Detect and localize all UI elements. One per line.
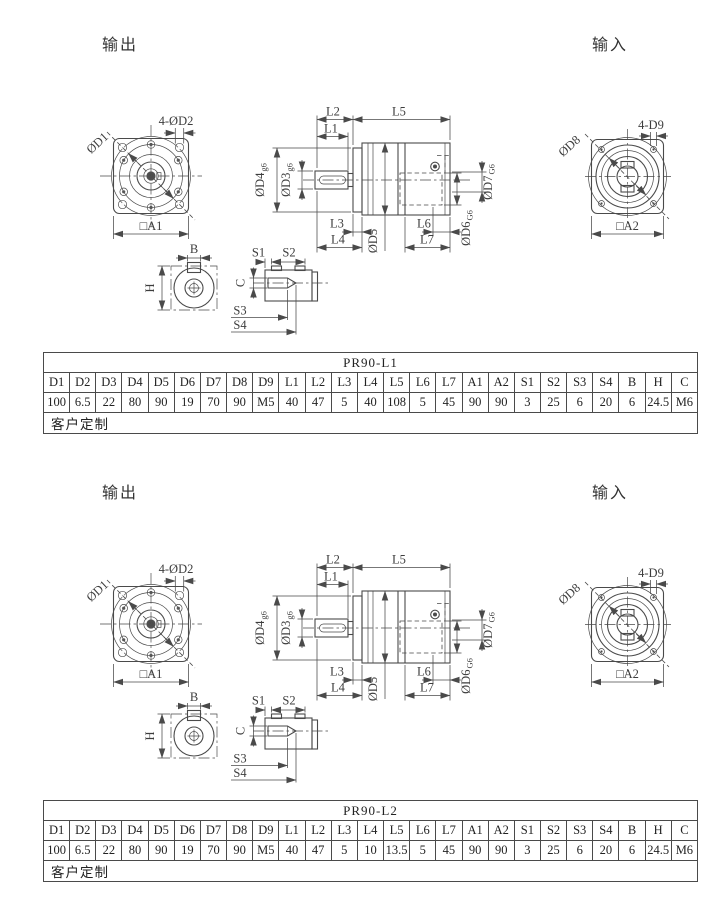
- table-cell: 19: [174, 393, 200, 413]
- table-cell: L4: [357, 373, 383, 393]
- table-cell: D1: [44, 373, 70, 393]
- table-cell: 6: [567, 841, 593, 861]
- dim-label-a1: □A1: [140, 667, 163, 681]
- table-cell: L2: [305, 821, 331, 841]
- dim-label-d8: ØD8: [556, 133, 583, 160]
- table-footer: 客户定制: [44, 413, 698, 434]
- table-cell: A2: [488, 821, 514, 841]
- table-cell: M5: [253, 393, 279, 413]
- dim-label-d4: ØD4g6: [253, 163, 269, 197]
- table-cell: 10: [357, 841, 383, 861]
- dim-label-s4: S4: [233, 766, 247, 780]
- dim-label-4d2: 4-ØD2: [159, 562, 194, 576]
- dim-label-s3: S3: [233, 304, 246, 318]
- output-front-view: ØD1 4-ØD2 □A1: [84, 114, 202, 239]
- table-cell: 100: [44, 393, 70, 413]
- dim-label-s1: S1: [252, 246, 265, 260]
- table-cell: L7: [436, 821, 462, 841]
- dim-label-l5: L5: [392, 105, 406, 119]
- dim-label-l4: L4: [331, 681, 346, 695]
- dim-label-s4: S4: [233, 318, 247, 332]
- table-cell: 80: [122, 841, 148, 861]
- table-cell: C: [671, 373, 697, 393]
- dim-label-l6: L6: [417, 665, 431, 679]
- table-cell: S4: [593, 821, 619, 841]
- table-cell: D2: [70, 373, 96, 393]
- table-cell: S1: [514, 821, 540, 841]
- table-cell: 22: [96, 393, 122, 413]
- dim-label-d8: ØD8: [556, 581, 583, 608]
- table-cell: 100: [44, 841, 70, 861]
- table-cell: 45: [436, 841, 462, 861]
- table-cell: 90: [227, 393, 253, 413]
- shaft-end-detail: B H: [143, 242, 217, 310]
- table-cell: A2: [488, 373, 514, 393]
- table-cell: S2: [540, 821, 566, 841]
- dim-label-4d2: 4-ØD2: [159, 114, 194, 128]
- table-cell: D9: [253, 373, 279, 393]
- dim-label-l4: L4: [331, 233, 346, 247]
- table-cell: L5: [384, 821, 410, 841]
- dim-label-d3: ØD3g6: [279, 163, 295, 197]
- table-cell: M6: [671, 393, 697, 413]
- table-cell: 80: [122, 393, 148, 413]
- table-cell: 22: [96, 841, 122, 861]
- dim-label-l6: L6: [417, 217, 431, 231]
- table-cell: D4: [122, 821, 148, 841]
- table-cell: L3: [331, 373, 357, 393]
- dim-label-s1: S1: [252, 694, 265, 708]
- table-cell: 19: [174, 841, 200, 861]
- table-cell: A1: [462, 821, 488, 841]
- dim-label-l2: L2: [326, 553, 340, 567]
- dim-label-4d9: 4-D9: [638, 118, 664, 132]
- table-cell: L5: [384, 373, 410, 393]
- table-cell: 70: [200, 393, 226, 413]
- table-cell: S1: [514, 373, 540, 393]
- dim-label-d7: ØD7G6: [481, 164, 497, 200]
- table-cell: 90: [148, 393, 174, 413]
- output-side-label: 输出: [102, 484, 138, 502]
- table-cell: D6: [174, 821, 200, 841]
- table-cell: 90: [227, 841, 253, 861]
- dim-label-c: C: [234, 727, 248, 735]
- table-cell: S4: [593, 373, 619, 393]
- dim-label-l5: L5: [392, 553, 406, 567]
- output-side-label: 输出: [102, 36, 138, 54]
- dim-label-s3: S3: [233, 752, 246, 766]
- table-cell: D9: [253, 821, 279, 841]
- table-cell: L4: [357, 821, 383, 841]
- table-value-row: 1006.5228090197090M5404751013.5545909032…: [44, 841, 698, 861]
- table-cell: S3: [567, 373, 593, 393]
- table-cell: 47: [305, 841, 331, 861]
- table-cell: D3: [96, 821, 122, 841]
- dim-label-s2: S2: [282, 246, 295, 260]
- table-cell: L6: [410, 821, 436, 841]
- table-cell: 40: [357, 393, 383, 413]
- dim-label-b: B: [190, 690, 198, 704]
- gearbox-drawing: 输出 输入 ØD1: [0, 15, 725, 350]
- dim-label-d7: ØD7G6: [481, 612, 497, 648]
- dim-label-l2: L2: [326, 105, 340, 119]
- table-cell: 70: [200, 841, 226, 861]
- table-cell: H: [645, 373, 671, 393]
- table-header-row: D1D2D3D4D5D6D7D8D9L1L2L3L4L5L6L7A1A2S1S2…: [44, 373, 698, 393]
- keyway-detail: S1 S2 C S3 S4: [231, 694, 329, 783]
- dim-label-a2: □A2: [616, 667, 639, 681]
- dim-label-d5: ØD5: [366, 229, 380, 253]
- section-1-spec-table: PR90-L1 D1D2D3D4D5D6D7D8D9L1L2L3L4L5L6L7…: [43, 352, 698, 434]
- dim-label-h: H: [143, 283, 157, 292]
- table-cell: S3: [567, 821, 593, 841]
- table-cell: D2: [70, 821, 96, 841]
- table-cell: 108: [384, 393, 410, 413]
- table-cell: 5: [410, 841, 436, 861]
- input-rear-view: ØD8 4-D9 □A2: [556, 118, 671, 239]
- table-cell: 24.5: [645, 393, 671, 413]
- table-cell: H: [645, 821, 671, 841]
- dim-label-d4: ØD4g6: [253, 611, 269, 645]
- dim-label-h: H: [143, 731, 157, 740]
- table-cell: L7: [436, 373, 462, 393]
- table-cell: 90: [462, 841, 488, 861]
- table-cell: 25: [540, 841, 566, 861]
- table-title: PR90-L2: [44, 801, 698, 821]
- table-cell: A1: [462, 373, 488, 393]
- table-cell: 47: [305, 393, 331, 413]
- dim-label-b: B: [190, 242, 198, 256]
- dim-label-d3: ØD3g6: [279, 611, 295, 645]
- input-side-label: 输入: [592, 484, 628, 502]
- dim-label-d1: ØD1: [84, 578, 111, 605]
- table-cell: D8: [227, 373, 253, 393]
- table-cell: 6: [619, 393, 645, 413]
- table-cell: 40: [279, 841, 305, 861]
- dim-label-s2: S2: [282, 694, 295, 708]
- side-section-view: L1 L2 L5 ØD4g6 ØD3g6 L3 L4 ØD5 L6 L7 ØD6…: [253, 105, 497, 254]
- dim-label-d5: ØD5: [366, 677, 380, 701]
- dim-label-l7: L7: [420, 681, 434, 695]
- drawing-sheet: 输出 输入 ØD1: [0, 0, 725, 897]
- input-rear-view: ØD8 4-D9 □A2: [556, 566, 671, 687]
- dim-label-c: C: [234, 279, 248, 287]
- table-footer: 客户定制: [44, 861, 698, 882]
- section-2-drawing: 输出 输入 ØD1: [0, 463, 725, 798]
- table-cell: L1: [279, 821, 305, 841]
- table-cell: L3: [331, 821, 357, 841]
- dim-label-a1: □A1: [140, 219, 163, 233]
- table-cell: 24.5: [645, 841, 671, 861]
- dim-label-l3: L3: [330, 217, 344, 231]
- table-cell: 5: [331, 841, 357, 861]
- dim-label-d6: ØD6G6: [459, 658, 475, 694]
- housing-screw: [431, 610, 440, 619]
- section-1-drawing: 输出 输入 ØD1: [0, 15, 725, 350]
- table-cell: L6: [410, 373, 436, 393]
- table-value-row: 1006.5228090197090M540475401085459090325…: [44, 393, 698, 413]
- table-cell: 6.5: [70, 393, 96, 413]
- table-cell: 3: [514, 841, 540, 861]
- dim-label-a2: □A2: [616, 219, 639, 233]
- table-cell: D4: [122, 373, 148, 393]
- table-cell: L1: [279, 373, 305, 393]
- table-cell: D8: [227, 821, 253, 841]
- table-cell: D7: [200, 821, 226, 841]
- table-cell: 90: [488, 393, 514, 413]
- keyway-detail: S1 S2 C S3 S4: [231, 246, 329, 335]
- table-cell: 13.5: [384, 841, 410, 861]
- table-cell: D1: [44, 821, 70, 841]
- table-cell: 6: [619, 841, 645, 861]
- table-cell: 5: [331, 393, 357, 413]
- table-cell: B: [619, 373, 645, 393]
- dim-label-l7: L7: [420, 233, 434, 247]
- table-cell: 90: [488, 841, 514, 861]
- dim-label-4d9: 4-D9: [638, 566, 664, 580]
- table-cell: 25: [540, 393, 566, 413]
- dim-label-l3: L3: [330, 665, 344, 679]
- table-cell: M6: [671, 841, 697, 861]
- table-cell: 45: [436, 393, 462, 413]
- table-cell: 6.5: [70, 841, 96, 861]
- table-header-row: D1D2D3D4D5D6D7D8D9L1L2L3L4L5L6L7A1A2S1S2…: [44, 821, 698, 841]
- table-cell: D6: [174, 373, 200, 393]
- table-cell: B: [619, 821, 645, 841]
- side-section-view: L1 L2 L5 ØD4g6 ØD3g6 L3 L4 ØD5 L6 L7 ØD6…: [253, 553, 497, 702]
- housing-screw: [431, 162, 440, 171]
- table-title: PR90-L1: [44, 353, 698, 373]
- dim-label-d1: ØD1: [84, 130, 111, 157]
- table-cell: 20: [593, 393, 619, 413]
- table-cell: S2: [540, 373, 566, 393]
- table-cell: M5: [253, 841, 279, 861]
- table-cell: 5: [410, 393, 436, 413]
- table-cell: 40: [279, 393, 305, 413]
- output-front-view: ØD1 4-ØD2 □A1: [84, 562, 202, 687]
- gearbox-drawing: 输出 输入 ØD1: [0, 463, 725, 798]
- table-cell: 6: [567, 393, 593, 413]
- input-side-label: 输入: [592, 36, 628, 54]
- shaft-end-detail: B H: [143, 690, 217, 758]
- table-cell: 20: [593, 841, 619, 861]
- table-cell: 3: [514, 393, 540, 413]
- dim-label-l1: L1: [324, 570, 338, 584]
- table-cell: D5: [148, 821, 174, 841]
- dim-label-d6: ØD6G6: [459, 210, 475, 246]
- section-2-spec-table: PR90-L2 D1D2D3D4D5D6D7D8D9L1L2L3L4L5L6L7…: [43, 800, 698, 882]
- table-cell: D7: [200, 373, 226, 393]
- table-cell: D3: [96, 373, 122, 393]
- dim-label-l1: L1: [324, 122, 338, 136]
- table-cell: 90: [462, 393, 488, 413]
- table-cell: C: [671, 821, 697, 841]
- table-cell: L2: [305, 373, 331, 393]
- table-cell: 90: [148, 841, 174, 861]
- table-cell: D5: [148, 373, 174, 393]
